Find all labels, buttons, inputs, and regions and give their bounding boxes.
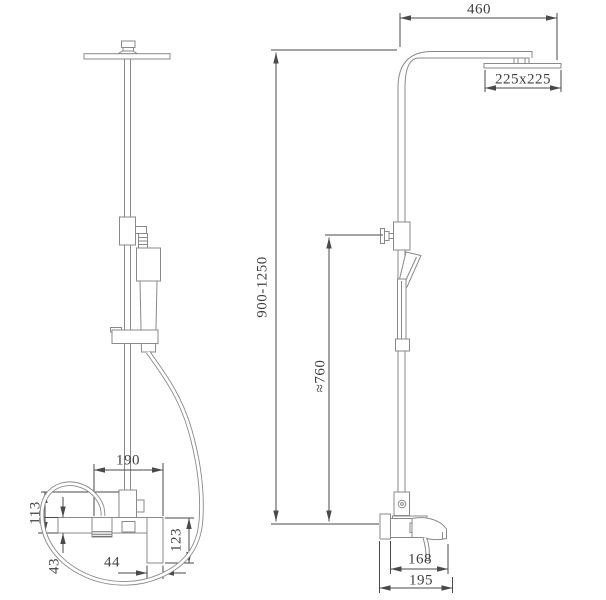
slider-bracket [120, 217, 148, 248]
technical-drawing-canvas: 460 225x225 900-1250 ≈760 190 113 43 44 … [0, 0, 606, 600]
dim-label-column-height: 900-1250 [255, 256, 272, 318]
spout-side [412, 518, 447, 540]
rain-shower-head-side [484, 64, 561, 69]
dim-label-overall-depth: 195 [409, 573, 433, 590]
rain-shower-head [84, 54, 170, 59]
dim-label-head-size: 225x225 [495, 72, 551, 89]
dim-label-arm-reach: 460 [467, 2, 491, 19]
side-view [380, 52, 561, 561]
spout-front [147, 518, 163, 564]
dim-760 [325, 235, 383, 522]
riser-pole [125, 59, 131, 490]
dim-460 [400, 13, 557, 60]
hand-shower-side [396, 252, 422, 351]
mixer-side [380, 492, 447, 561]
rail-holder-bracket [111, 328, 159, 344]
dim-label-spout-reach: 168 [408, 552, 432, 569]
dim-900-1250 [271, 50, 397, 524]
mixer-front [58, 490, 163, 563]
dim-label-spout-width: 44 [104, 555, 120, 572]
dim-label-spout-drop: 123 [169, 528, 186, 552]
dim-label-mixer-width: 190 [116, 453, 140, 470]
head-connector [118, 41, 138, 54]
dim-label-body-height: 43 [47, 558, 64, 574]
dim-label-escutcheon-to-body: 113 [28, 501, 45, 524]
slider-bracket-side [381, 222, 411, 250]
shower-arm-and-pole [398, 52, 532, 493]
shower-column-drawing [0, 0, 606, 600]
wall-plate [380, 514, 391, 539]
dim-label-hose-height: ≈760 [313, 360, 330, 393]
side-dimensions [271, 13, 561, 593]
